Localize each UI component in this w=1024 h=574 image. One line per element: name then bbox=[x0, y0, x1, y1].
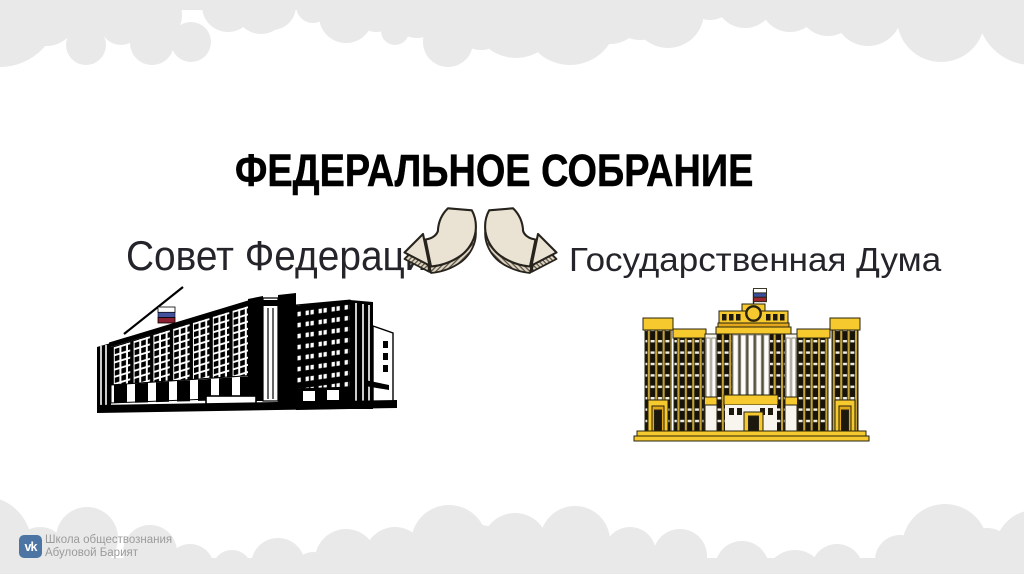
svg-text:vk: vk bbox=[25, 540, 38, 554]
